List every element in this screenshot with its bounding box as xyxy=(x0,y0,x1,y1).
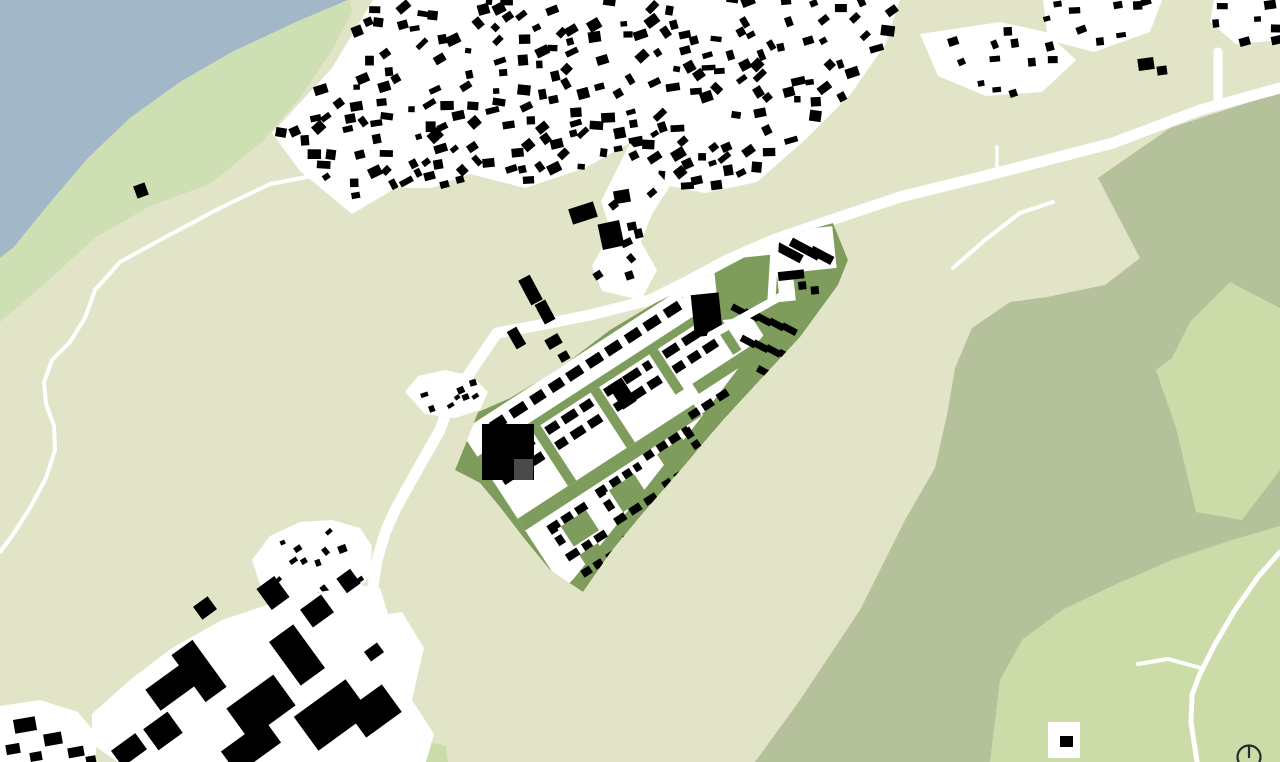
town-building xyxy=(1048,56,1058,63)
town-building xyxy=(731,111,741,119)
town-building xyxy=(589,121,603,131)
town-building xyxy=(600,148,608,157)
town-building xyxy=(1053,1,1062,8)
town-building xyxy=(517,84,531,96)
town-building xyxy=(1254,16,1261,22)
town-building xyxy=(373,17,384,27)
town-building xyxy=(482,158,495,168)
town-building xyxy=(1271,24,1280,32)
town-building xyxy=(1212,19,1219,28)
town-building xyxy=(613,127,626,140)
town-building xyxy=(308,149,321,159)
town-building xyxy=(629,119,638,128)
building xyxy=(1137,57,1155,71)
town-building xyxy=(325,149,336,160)
town-building xyxy=(317,160,331,168)
town-building xyxy=(1113,1,1123,10)
town-building xyxy=(433,159,444,170)
town-building xyxy=(1028,58,1036,67)
town-building xyxy=(518,165,527,174)
town-building xyxy=(710,180,722,191)
development-building xyxy=(798,281,807,290)
town-building xyxy=(380,150,393,157)
town-building xyxy=(426,121,436,132)
town-building xyxy=(570,107,582,117)
town-building xyxy=(880,25,895,37)
town-building xyxy=(408,106,415,112)
town-building xyxy=(673,66,681,73)
town-building xyxy=(499,69,508,77)
town-building xyxy=(467,101,479,110)
town-building xyxy=(1264,0,1277,10)
town-building xyxy=(1069,7,1081,14)
town-building xyxy=(493,88,499,94)
town-building xyxy=(1010,38,1019,48)
town-building xyxy=(723,164,734,176)
town-building xyxy=(714,68,725,75)
development-building xyxy=(810,286,819,295)
town-building xyxy=(536,60,543,68)
site-plan-map xyxy=(0,0,1280,762)
town-building xyxy=(519,34,531,44)
map-canvas xyxy=(0,0,1280,762)
building xyxy=(1156,65,1167,75)
town-building xyxy=(670,125,684,133)
town-building xyxy=(275,127,287,138)
town-building xyxy=(376,98,387,106)
development-building xyxy=(694,326,709,337)
town-building xyxy=(751,161,762,172)
town-building xyxy=(601,112,615,122)
town-building xyxy=(835,4,847,12)
town-building xyxy=(702,65,716,71)
town-building xyxy=(365,56,374,66)
town-building xyxy=(1133,1,1143,10)
town-building xyxy=(372,134,382,145)
town-building xyxy=(511,148,524,158)
town-building xyxy=(992,87,1001,93)
town-building xyxy=(1003,27,1012,36)
town-building xyxy=(809,110,822,122)
town-building xyxy=(977,80,984,87)
building xyxy=(613,189,631,205)
town-building xyxy=(465,48,472,54)
town-building xyxy=(763,148,776,156)
town-building xyxy=(518,54,529,66)
town-building xyxy=(344,113,356,124)
town-building xyxy=(698,153,706,160)
building xyxy=(1060,736,1073,747)
town-building xyxy=(805,79,814,86)
town-building xyxy=(350,178,359,187)
town-building xyxy=(353,84,360,89)
town-building xyxy=(300,135,309,146)
town-building xyxy=(523,176,535,184)
town-building xyxy=(1096,37,1104,46)
town-building xyxy=(623,31,632,37)
town-building xyxy=(485,0,492,5)
town-building xyxy=(642,139,655,149)
town-building xyxy=(665,5,674,15)
town-building xyxy=(811,97,822,107)
town-building xyxy=(526,116,535,125)
town-building xyxy=(385,67,394,76)
town-building xyxy=(1217,3,1228,9)
town-building xyxy=(620,21,627,27)
town-building xyxy=(369,6,380,13)
town-building xyxy=(989,55,1000,62)
town-building xyxy=(794,96,801,103)
town-building xyxy=(577,164,585,170)
town-building xyxy=(588,31,602,43)
town-building xyxy=(440,101,454,110)
